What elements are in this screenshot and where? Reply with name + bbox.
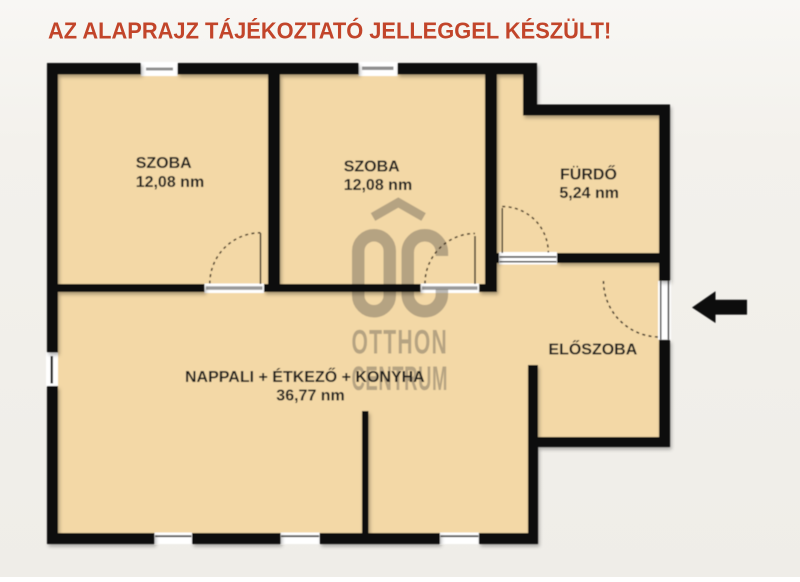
svg-text:SZOBA: SZOBA <box>344 159 400 176</box>
svg-text:ELŐSZOBA: ELŐSZOBA <box>548 340 637 359</box>
svg-text:36,77 nm: 36,77 nm <box>276 388 344 405</box>
svg-text:SZOBA: SZOBA <box>136 155 192 172</box>
svg-text:AZ ALAPRAJZ TÁJÉKOZTATÓ JELLEG: AZ ALAPRAJZ TÁJÉKOZTATÓ JELLEGGEL KÉSZÜL… <box>48 17 611 44</box>
svg-text:12,08 nm: 12,08 nm <box>136 174 204 191</box>
svg-text:12,08 nm: 12,08 nm <box>344 177 412 194</box>
svg-text:5,24 nm: 5,24 nm <box>559 185 619 202</box>
svg-text:OTTHON: OTTHON <box>352 324 448 362</box>
svg-text:NAPPALI + ÉTKEZŐ + KONYHA: NAPPALI + ÉTKEZŐ + KONYHA <box>185 367 425 386</box>
svg-text:FÜRDŐ: FÜRDŐ <box>560 164 617 183</box>
